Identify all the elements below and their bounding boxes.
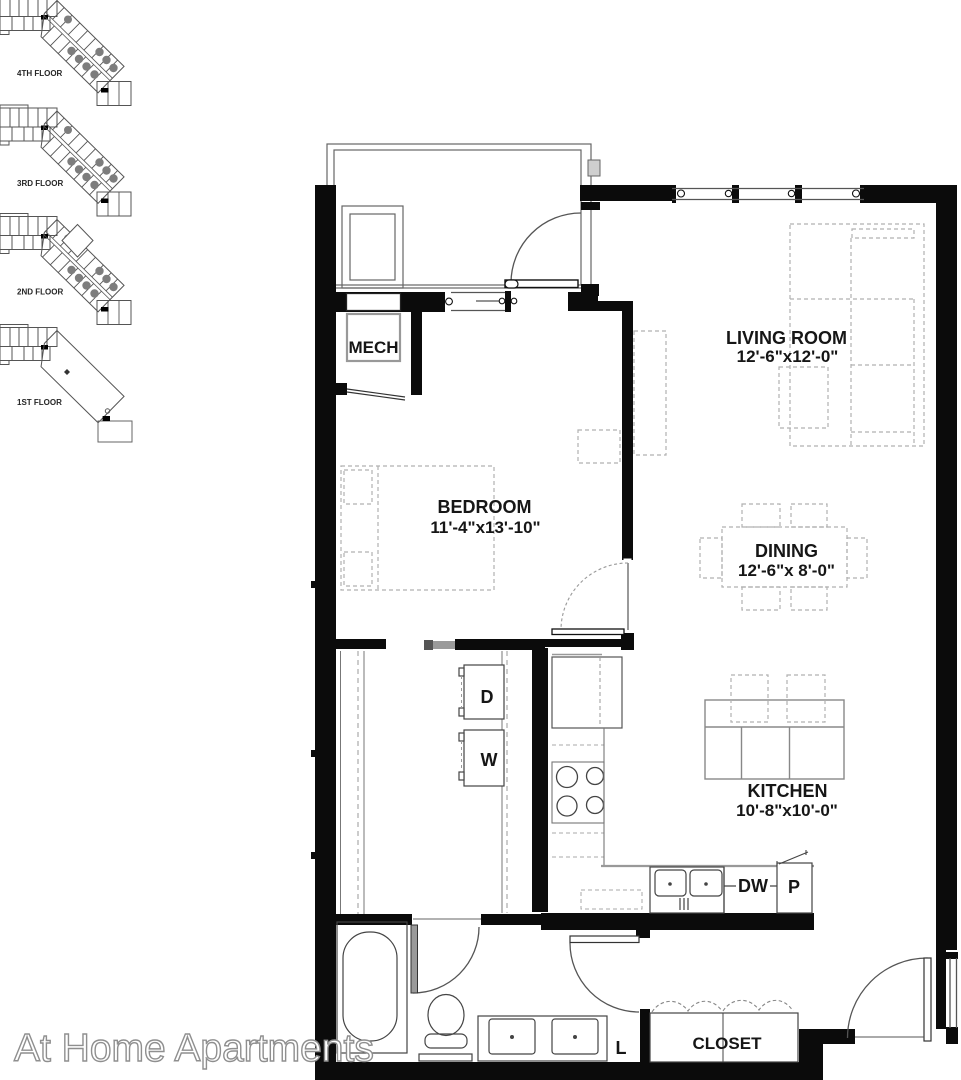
svg-text:3RD FLOOR: 3RD FLOOR — [17, 179, 63, 188]
svg-text:KITCHEN: KITCHEN — [748, 781, 828, 801]
svg-text:LIVING ROOM: LIVING ROOM — [726, 328, 847, 348]
svg-text:DINING: DINING — [755, 541, 818, 561]
svg-text:10'-8"x10'-0": 10'-8"x10'-0" — [736, 801, 838, 820]
svg-text:BEDROOM: BEDROOM — [438, 497, 532, 517]
svg-text:12'-6"x 8'-0": 12'-6"x 8'-0" — [738, 561, 835, 580]
svg-text:MECH: MECH — [348, 338, 398, 357]
svg-text:CLOSET: CLOSET — [693, 1034, 763, 1053]
svg-text:P: P — [788, 877, 800, 897]
svg-text:L: L — [616, 1038, 627, 1058]
svg-text:2ND FLOOR: 2ND FLOOR — [17, 288, 63, 297]
svg-text:11'-4"x13'-10": 11'-4"x13'-10" — [430, 518, 540, 537]
svg-text:W: W — [481, 750, 498, 770]
svg-text:DW: DW — [738, 876, 768, 896]
svg-text:4TH FLOOR: 4TH FLOOR — [17, 69, 63, 78]
svg-text:D: D — [481, 687, 494, 707]
svg-text:12'-6"x12'-0": 12'-6"x12'-0" — [737, 347, 839, 366]
svg-text:1ST FLOOR: 1ST FLOOR — [17, 398, 62, 407]
svg-text:At Home Apartments: At Home Apartments — [14, 1027, 374, 1070]
